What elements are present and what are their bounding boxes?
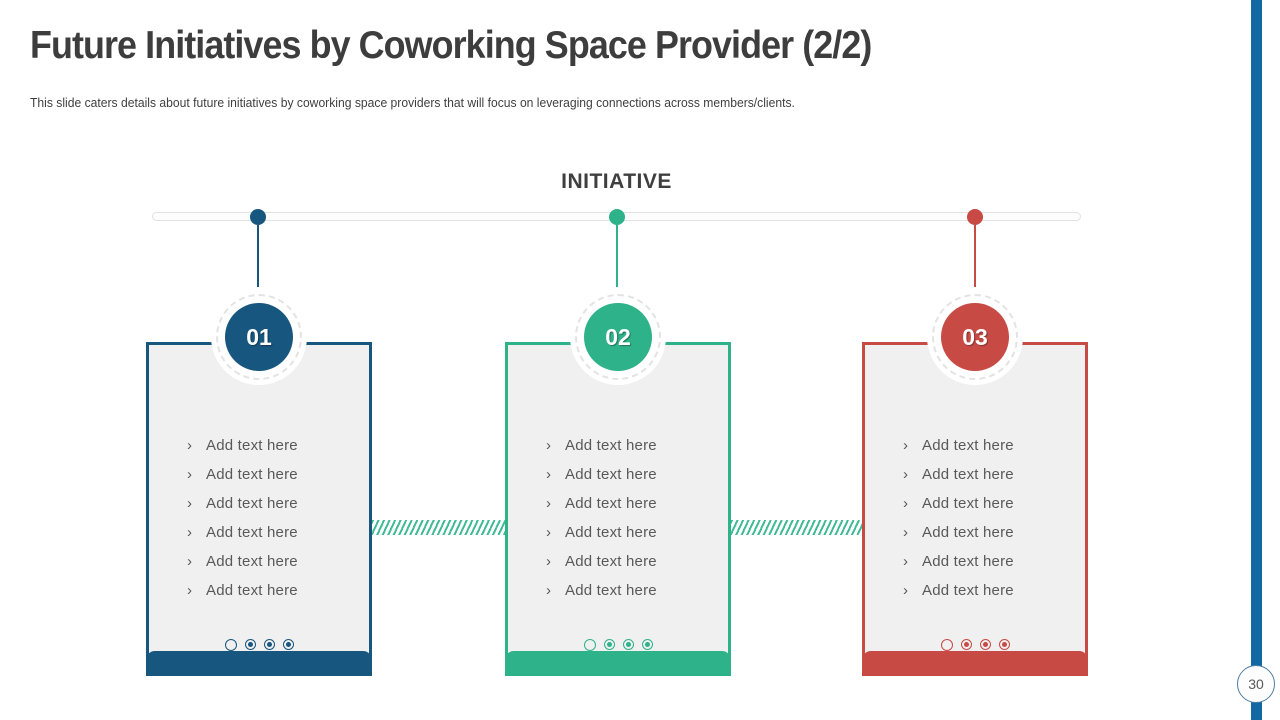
bullet-item: ›Add text here xyxy=(187,576,363,605)
timeline-stem-3 xyxy=(974,225,976,287)
bullet-text: Add text here xyxy=(565,489,657,518)
bullet-text: Add text here xyxy=(565,547,657,576)
timeline-stem-1 xyxy=(257,225,259,287)
chevron-bullet-icon: › xyxy=(546,460,565,489)
slide-subtitle: This slide caters details about future i… xyxy=(30,96,795,110)
card-footer-bar-2 xyxy=(505,651,731,676)
footer-icon-row-1 xyxy=(149,638,369,651)
chevron-bullet-icon: › xyxy=(187,489,206,518)
bullseye-icon xyxy=(604,639,615,650)
bullet-text: Add text here xyxy=(206,518,298,547)
step-number-2: 02 xyxy=(584,303,652,371)
bullet-item: ›Add text here xyxy=(903,518,1079,547)
bullet-list-2: ›Add text here›Add text here›Add text he… xyxy=(546,431,722,605)
step-badge-2: 02 xyxy=(570,289,666,385)
initiative-card-2: 02 ›Add text here›Add text here›Add text… xyxy=(505,342,731,676)
bullet-text: Add text here xyxy=(922,547,1014,576)
right-accent-bar xyxy=(1251,0,1262,720)
bullet-text: Add text here xyxy=(922,460,1014,489)
page-number-badge: 30 xyxy=(1237,665,1275,703)
timeline-stem-2 xyxy=(616,225,618,287)
bullet-text: Add text here xyxy=(922,576,1014,605)
bullseye-icon xyxy=(961,639,972,650)
initiative-card-3: 03 ›Add text here›Add text here›Add text… xyxy=(862,342,1088,676)
bullseye-icon xyxy=(980,639,991,650)
bullet-item: ›Add text here xyxy=(903,431,1079,460)
bullet-text: Add text here xyxy=(565,576,657,605)
chevron-bullet-icon: › xyxy=(546,547,565,576)
bullet-item: ›Add text here xyxy=(903,460,1079,489)
card-footer-bar-3 xyxy=(862,651,1088,676)
bullet-item: ›Add text here xyxy=(187,460,363,489)
bullet-item: ›Add text here xyxy=(187,489,363,518)
bullet-text: Add text here xyxy=(565,518,657,547)
bullet-item: ›Add text here xyxy=(187,431,363,460)
chevron-bullet-icon: › xyxy=(546,576,565,605)
bullseye-icon xyxy=(245,639,256,650)
bullet-item: ›Add text here xyxy=(903,489,1079,518)
timeline-dot-1 xyxy=(250,209,266,225)
bullet-item: ›Add text here xyxy=(546,431,722,460)
chevron-bullet-icon: › xyxy=(903,431,922,460)
page-number: 30 xyxy=(1248,676,1264,692)
bullet-item: ›Add text here xyxy=(546,518,722,547)
initiative-card-1: 01 ›Add text here›Add text here›Add text… xyxy=(146,342,372,676)
bullet-text: Add text here xyxy=(206,460,298,489)
bullet-item: ›Add text here xyxy=(546,489,722,518)
chevron-bullet-icon: › xyxy=(903,547,922,576)
step-badge-1: 01 xyxy=(211,289,307,385)
timeline-dot-2 xyxy=(609,209,625,225)
chevron-bullet-icon: › xyxy=(546,518,565,547)
bullet-text: Add text here xyxy=(565,431,657,460)
step-number-3: 03 xyxy=(941,303,1009,371)
bullet-item: ›Add text here xyxy=(546,460,722,489)
chevron-bullet-icon: › xyxy=(903,518,922,547)
card-footer-bar-1 xyxy=(146,651,372,676)
bullet-item: ›Add text here xyxy=(187,518,363,547)
hatched-connector-1 xyxy=(372,520,505,535)
bullet-text: Add text here xyxy=(206,576,298,605)
bullseye-icon xyxy=(283,639,294,650)
bullet-item: ›Add text here xyxy=(187,547,363,576)
bullseye-icon xyxy=(999,639,1010,650)
bullet-text: Add text here xyxy=(206,431,298,460)
circle-outline-icon xyxy=(941,639,953,651)
chevron-bullet-icon: › xyxy=(187,547,206,576)
bullet-list-1: ›Add text here›Add text here›Add text he… xyxy=(187,431,363,605)
step-number-1: 01 xyxy=(225,303,293,371)
timeline-dot-3 xyxy=(967,209,983,225)
step-badge-3: 03 xyxy=(927,289,1023,385)
bullet-text: Add text here xyxy=(922,431,1014,460)
bullet-item: ›Add text here xyxy=(546,547,722,576)
bullet-item: ›Add text here xyxy=(903,547,1079,576)
badge-decorative-ring: 03 xyxy=(932,294,1018,380)
bullet-text: Add text here xyxy=(922,489,1014,518)
badge-decorative-ring: 01 xyxy=(216,294,302,380)
bullet-text: Add text here xyxy=(206,489,298,518)
page-title: Future Initiatives by Coworking Space Pr… xyxy=(30,24,871,68)
badge-decorative-ring: 02 xyxy=(575,294,661,380)
chevron-bullet-icon: › xyxy=(903,460,922,489)
chevron-bullet-icon: › xyxy=(546,489,565,518)
chevron-bullet-icon: › xyxy=(546,431,565,460)
section-heading: INITIATIVE xyxy=(152,170,1081,194)
chevron-bullet-icon: › xyxy=(903,489,922,518)
footer-icon-row-2 xyxy=(508,638,728,651)
bullet-item: ›Add text here xyxy=(903,576,1079,605)
bullet-text: Add text here xyxy=(922,518,1014,547)
chevron-bullet-icon: › xyxy=(187,518,206,547)
chevron-bullet-icon: › xyxy=(187,460,206,489)
footer-icon-row-3 xyxy=(865,638,1085,651)
chevron-bullet-icon: › xyxy=(187,431,206,460)
bullseye-icon xyxy=(642,639,653,650)
chevron-bullet-icon: › xyxy=(903,576,922,605)
bullet-text: Add text here xyxy=(565,460,657,489)
bullet-item: ›Add text here xyxy=(546,576,722,605)
bullet-text: Add text here xyxy=(206,547,298,576)
chevron-bullet-icon: › xyxy=(187,576,206,605)
circle-outline-icon xyxy=(225,639,237,651)
bullseye-icon xyxy=(623,639,634,650)
bullseye-icon xyxy=(264,639,275,650)
hatched-connector-2 xyxy=(731,520,862,535)
circle-outline-icon xyxy=(584,639,596,651)
bullet-list-3: ›Add text here›Add text here›Add text he… xyxy=(903,431,1079,605)
